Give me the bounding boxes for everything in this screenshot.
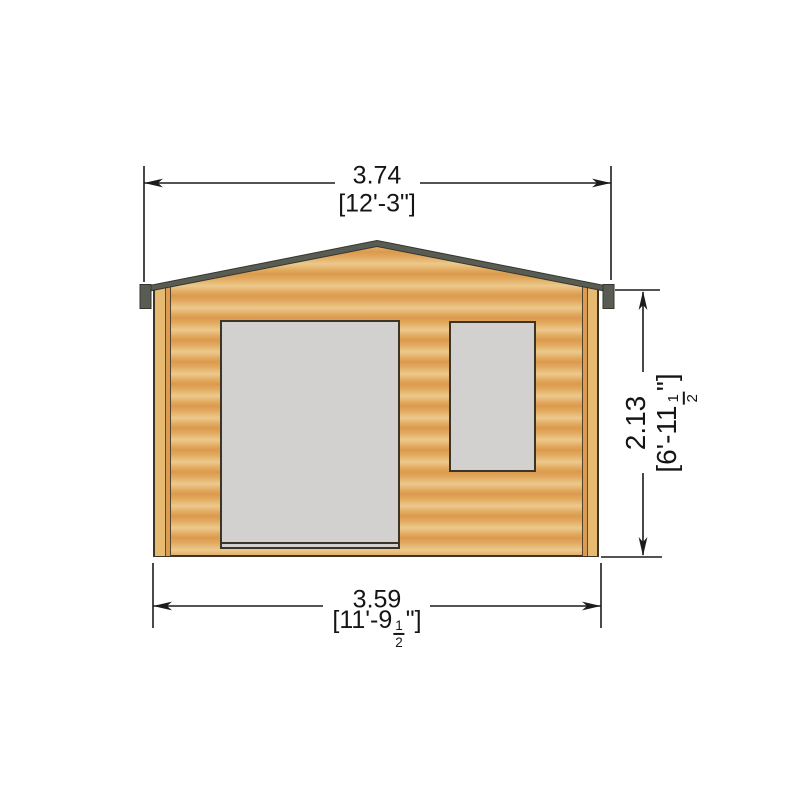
roof-drip-edge-right	[603, 285, 614, 309]
gable-wall	[146, 242, 608, 289]
bottom-imperial-prefix: [11'-9	[332, 606, 392, 634]
window-opening	[449, 321, 536, 472]
right-imperial-fraction: 12	[666, 392, 702, 404]
top-dimension-metric: 3.74	[353, 162, 402, 191]
right-imperial-suffix: "]	[651, 373, 682, 391]
arrow-bottom-left	[153, 602, 172, 611]
arrow-right-bottom	[639, 537, 648, 556]
right-imperial-prefix: [6'-11	[651, 406, 682, 473]
arrow-right-top	[639, 291, 648, 310]
arrow-top-left	[144, 179, 163, 188]
bottom-imperial-suffix: "]	[406, 606, 422, 634]
arrow-top-right	[592, 179, 611, 188]
roof-drip-edge-left	[140, 285, 151, 309]
arrow-bottom-right	[582, 602, 601, 611]
door-opening	[220, 320, 400, 549]
door-sill-line	[222, 542, 398, 544]
right-dimension-imperial: [6'-1112"]	[651, 373, 702, 472]
corner-trim-left-inner	[166, 287, 171, 556]
corner-trim-left-outer	[155, 287, 166, 556]
bottom-dimension-imperial: [11'-912"]	[332, 606, 421, 650]
right-dimension-label: 2.13 [6'-1112"]	[620, 373, 702, 472]
top-dimension-imperial: [12'-3"]	[338, 190, 416, 219]
right-dimension-metric: 2.13	[620, 373, 651, 472]
corner-trim-right-outer	[587, 287, 597, 556]
drawing-canvas: 3.74 [12'-3"] 3.59 [11'-912"] 2.13 [6'-1…	[0, 0, 800, 800]
bottom-imperial-fraction: 12	[393, 618, 405, 650]
